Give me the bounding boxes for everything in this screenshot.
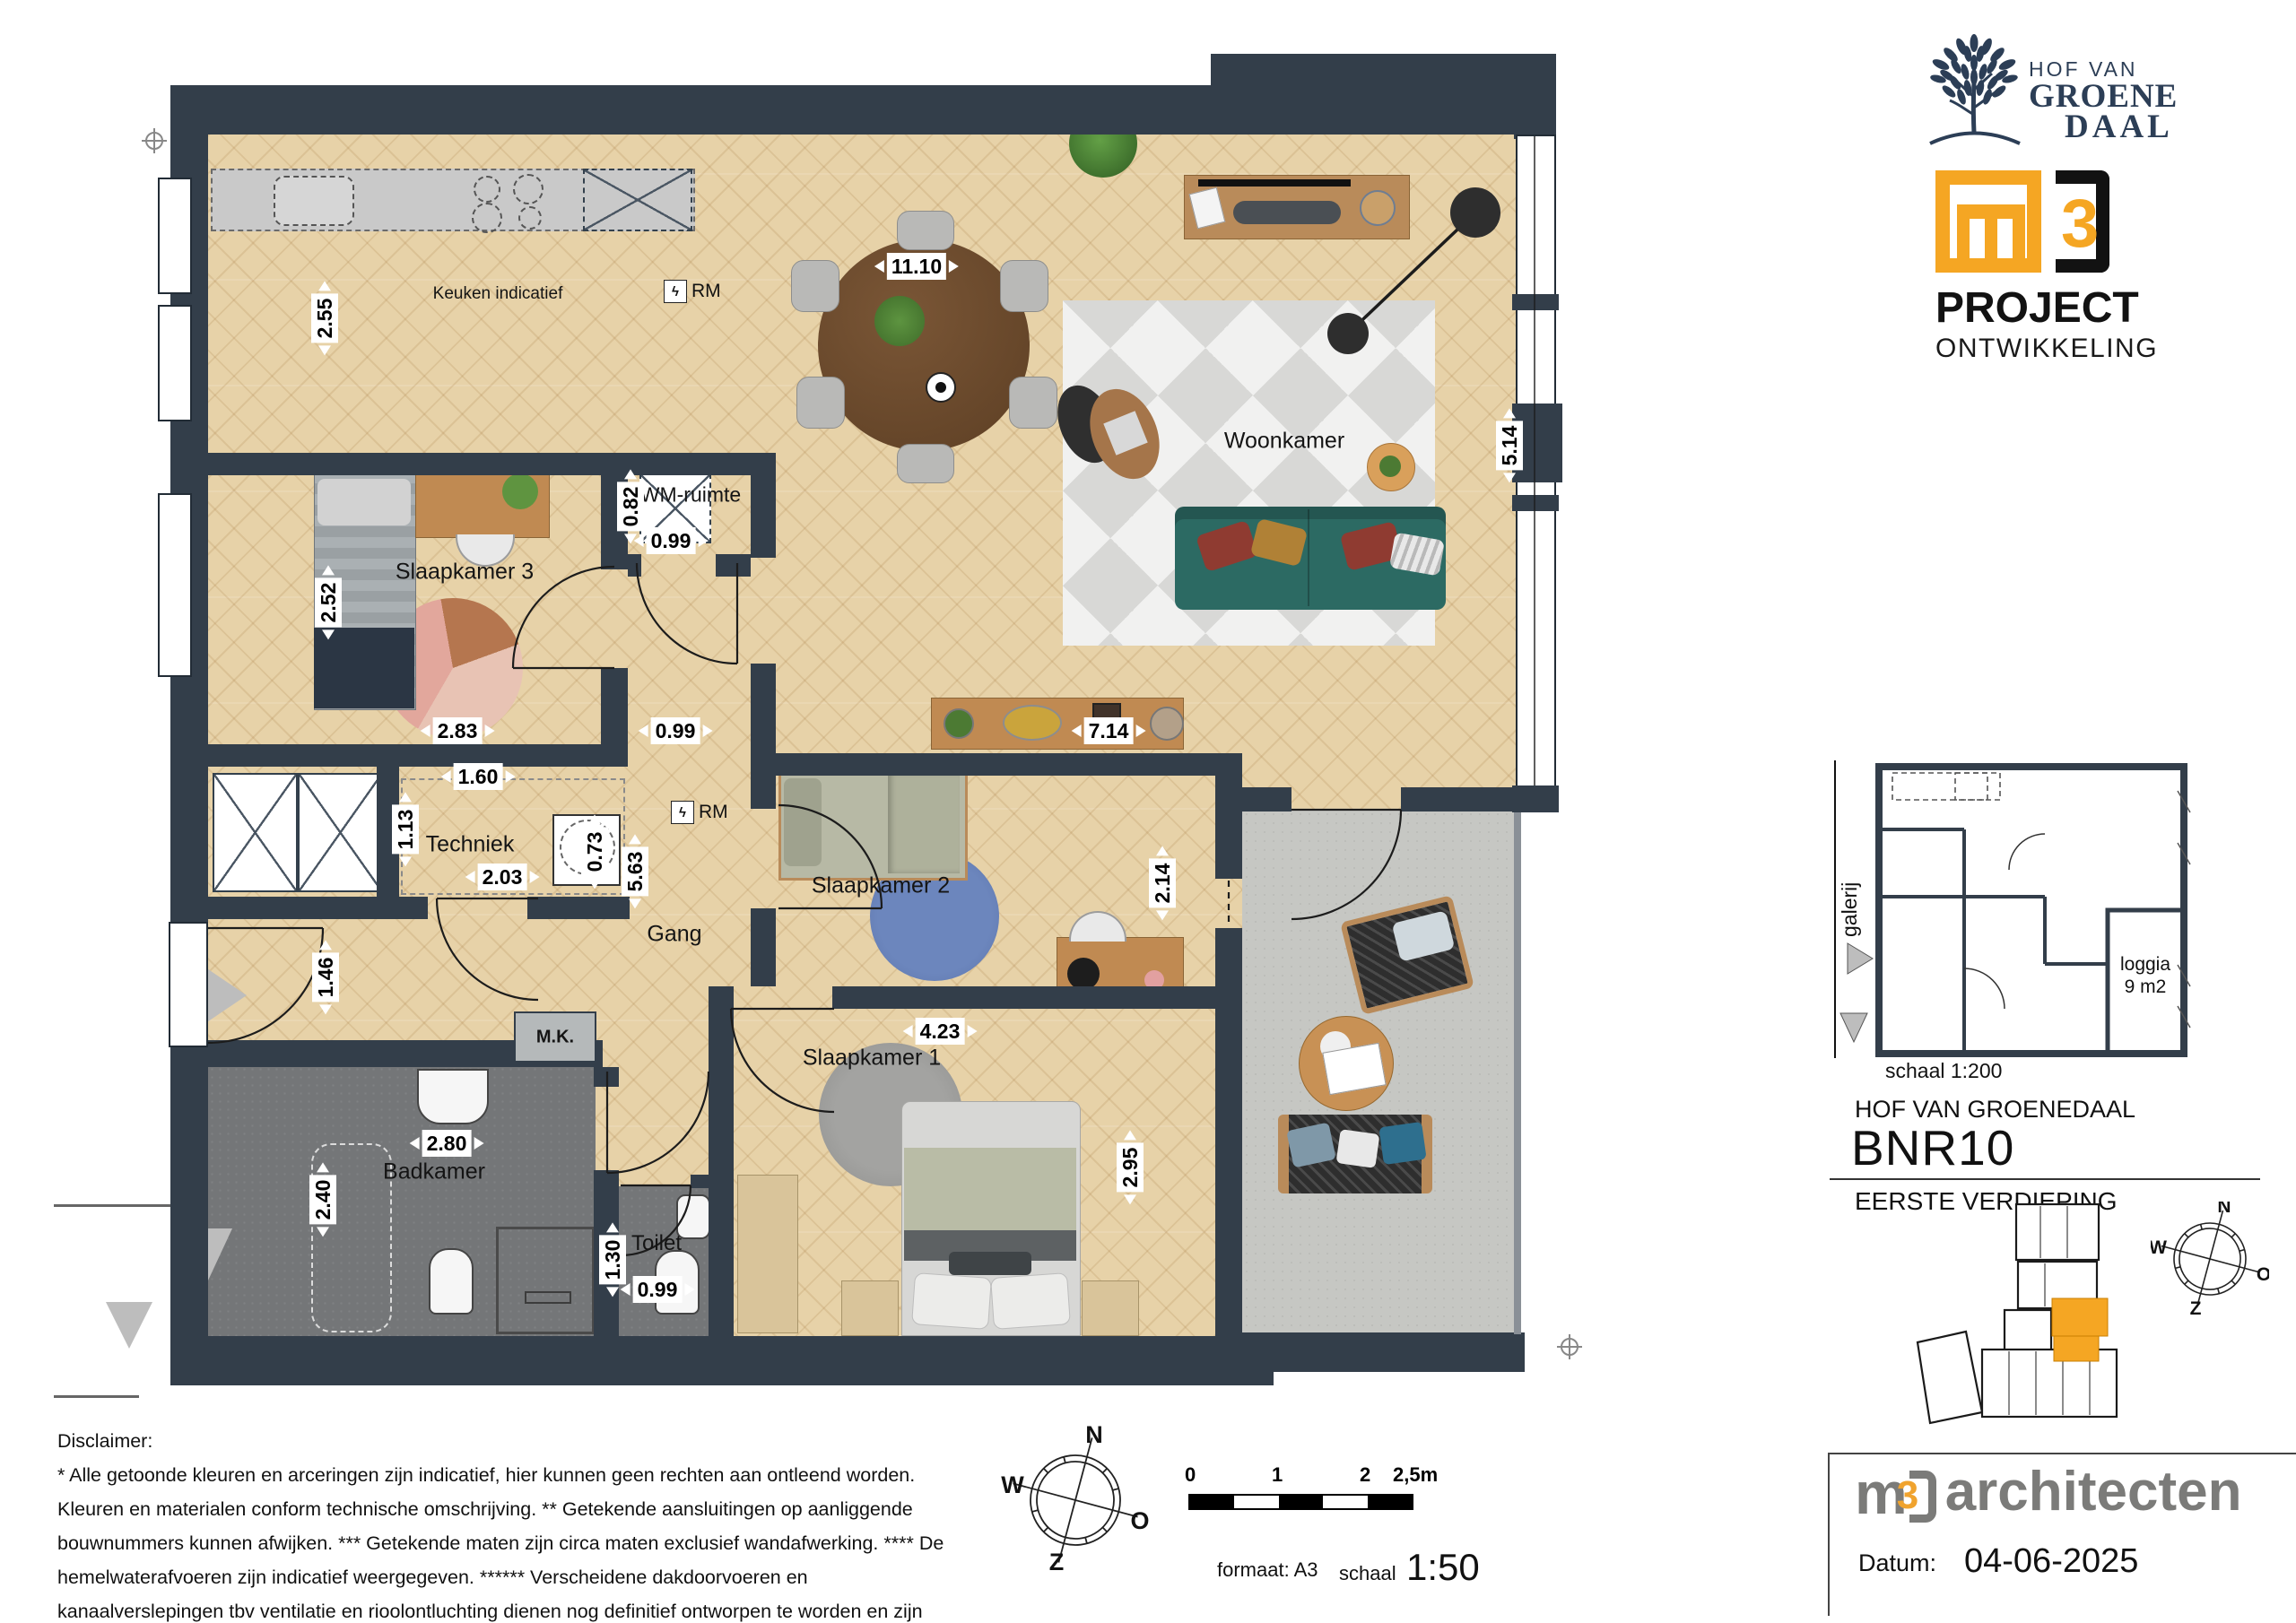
mini-plan-scale-label: schaal 1:200 bbox=[1885, 1059, 2002, 1082]
room-label-wm-ruimte: WM-ruimte bbox=[640, 483, 741, 508]
sideboard-fruitbowl bbox=[1003, 705, 1062, 741]
dim-label: 5.14 bbox=[1496, 403, 1523, 490]
bolt-icon: ϟ bbox=[664, 280, 687, 303]
rm-label: RM bbox=[691, 281, 721, 302]
north-compass-icon: N W O Z bbox=[997, 1424, 1154, 1581]
sofa-seam bbox=[1308, 509, 1309, 606]
bolt-icon: ϟ bbox=[671, 801, 694, 824]
desk-keyboard bbox=[1233, 201, 1341, 224]
desk-monitor-strip bbox=[1198, 179, 1351, 187]
outdoor-sofa-pillow bbox=[1378, 1122, 1426, 1165]
m3-logo-number: 3 bbox=[2061, 185, 2099, 263]
loggia-railing bbox=[1514, 811, 1521, 1334]
room-label-gang: Gang bbox=[647, 922, 701, 948]
gallery-arrow-icon bbox=[1840, 1013, 1867, 1042]
site-compass-icon: N W O Z bbox=[2151, 1202, 2269, 1320]
cooktop-burner bbox=[472, 203, 502, 233]
m3a-number: 3 bbox=[1897, 1473, 1918, 1518]
wardrobe-sk1 bbox=[737, 1175, 798, 1333]
floor-plan: Keuken indicatief Woonkamer Slaapkamer 3… bbox=[0, 0, 1623, 1623]
bathroom-sink bbox=[417, 1069, 489, 1124]
tree-icon bbox=[1925, 30, 2025, 149]
m3-square-icon bbox=[1935, 170, 2041, 273]
date-value: 04-06-2025 bbox=[1964, 1542, 2138, 1581]
m3-project-logo: 3 PROJECT ONTWIKKELING bbox=[1935, 170, 2276, 368]
dining-chair bbox=[897, 444, 954, 483]
room-label-woonkamer: Woonkamer bbox=[1224, 429, 1344, 455]
dim-label: 2.80 bbox=[404, 1130, 491, 1157]
cooktop-burner bbox=[513, 174, 544, 204]
hvg-logo-line3: DAAL bbox=[2029, 112, 2178, 143]
architect-block: m 3 architecten Datum: 04-06-2025 bbox=[1828, 1453, 2296, 1616]
scalebar-tick-1: 1 bbox=[1272, 1463, 1283, 1487]
rm-marker: ϟ RM bbox=[664, 280, 721, 303]
dining-chair bbox=[791, 260, 839, 312]
dim-label: 1.13 bbox=[392, 786, 419, 873]
wall bbox=[691, 1175, 709, 1188]
wall bbox=[527, 897, 630, 919]
bed-sk3-pillow bbox=[317, 479, 411, 525]
desk-sk3-plant bbox=[502, 473, 538, 509]
hof-van-groenedaal-logo: HOF VAN GROENE DAAL bbox=[1925, 30, 2283, 156]
wall bbox=[1514, 85, 1556, 139]
scalebar-tick-2: 2 bbox=[1360, 1463, 1370, 1487]
compass-o: O bbox=[2257, 1264, 2269, 1285]
m3a-text: architecten bbox=[1945, 1467, 2242, 1517]
wall bbox=[776, 753, 1215, 776]
shower-drain bbox=[525, 1291, 571, 1304]
dim-label: 7.14 bbox=[1065, 717, 1152, 744]
bed-sk1-pillow bbox=[990, 1272, 1071, 1330]
window-mullion bbox=[1512, 294, 1559, 310]
wardrobe-cabinet bbox=[298, 773, 383, 892]
dim-label: 2.83 bbox=[414, 717, 501, 744]
cooktop-burner bbox=[474, 176, 500, 203]
window bbox=[158, 305, 192, 421]
gallery-arrow-icon bbox=[1848, 943, 1873, 974]
wall bbox=[1215, 753, 1242, 879]
m3-project-line1: PROJECT bbox=[1935, 283, 2139, 333]
disclaimer-block: Disclaimer: * Alle getoonde kleuren en a… bbox=[57, 1424, 959, 1623]
dim-label: 2.40 bbox=[309, 1157, 336, 1244]
dim-label: 11.10 bbox=[868, 253, 965, 280]
toilet-wc-badkamer bbox=[429, 1248, 474, 1315]
wall bbox=[208, 453, 776, 475]
compass-w: W bbox=[2151, 1237, 2167, 1258]
window-mullion bbox=[1512, 785, 1559, 812]
room-label-toilet: Toilet bbox=[631, 1231, 682, 1256]
table-plant bbox=[874, 296, 925, 346]
bed-sk1-cushion bbox=[949, 1252, 1031, 1275]
site-line bbox=[54, 1204, 170, 1207]
wall bbox=[709, 1009, 734, 1336]
bed-sk2-pillow bbox=[784, 778, 822, 866]
nightstand bbox=[1082, 1280, 1139, 1336]
compass-w: W bbox=[1001, 1471, 1024, 1498]
wall bbox=[751, 453, 776, 558]
window bbox=[158, 178, 192, 294]
room-label-meterkast: M.K. bbox=[536, 1028, 574, 1048]
scale-label: schaal bbox=[1339, 1562, 1396, 1585]
dim-label: 2.03 bbox=[459, 864, 546, 890]
room-label-badkamer: Badkamer bbox=[383, 1159, 485, 1185]
site-line bbox=[54, 1395, 139, 1398]
scalebar-tick-0: 0 bbox=[1185, 1463, 1196, 1487]
date-label: Datum: bbox=[1858, 1549, 1936, 1577]
site-key-plan bbox=[1910, 1197, 2179, 1435]
nightstand bbox=[841, 1280, 899, 1336]
disclaimer-title: Disclaimer: bbox=[57, 1424, 959, 1458]
rm-marker: ϟ RM bbox=[671, 801, 728, 824]
loggia-area-label: 9 m2 bbox=[2125, 976, 2167, 997]
galerij-label: galerij bbox=[1838, 882, 1861, 937]
room-label-slaapkamer2: Slaapkamer 2 bbox=[812, 873, 950, 899]
dining-chair bbox=[1009, 377, 1057, 429]
wall bbox=[709, 986, 734, 1009]
window-mullion bbox=[1512, 495, 1559, 511]
window bbox=[158, 493, 192, 677]
rm-label: RM bbox=[699, 802, 728, 823]
scale-bar: 0 1 2 2,5m bbox=[1188, 1463, 1413, 1517]
outside-strip bbox=[1523, 811, 1559, 1336]
scalebar-tick-25: 2,5m bbox=[1393, 1463, 1438, 1487]
room-label-keuken: Keuken indicatief bbox=[433, 284, 563, 304]
dining-chair bbox=[897, 211, 954, 250]
format-label: formaat: A3 bbox=[1217, 1558, 1318, 1582]
stair-arrow-icon bbox=[106, 1302, 152, 1349]
wall bbox=[751, 908, 776, 986]
hvg-logo-line2: GROENE bbox=[2029, 82, 2178, 112]
sideboard-record bbox=[1150, 707, 1184, 741]
dim-label: 2.52 bbox=[315, 560, 342, 647]
loggia-label: loggia bbox=[2120, 954, 2170, 975]
dim-label: 2.14 bbox=[1149, 840, 1176, 927]
dim-label: 2.55 bbox=[311, 275, 338, 362]
compass-z: Z bbox=[1049, 1549, 1065, 1575]
wall bbox=[170, 85, 1556, 135]
dim-label: 1.46 bbox=[312, 934, 339, 1021]
mini-plan-1-200: galerij loggia 9 m2 schaal 1:200 bbox=[1830, 744, 2296, 1085]
dining-chair bbox=[1000, 260, 1048, 312]
room-label-slaapkamer1: Slaapkamer 1 bbox=[803, 1046, 941, 1072]
wall bbox=[1215, 787, 1291, 811]
bed-sk1-pillow bbox=[911, 1272, 992, 1330]
wall bbox=[751, 664, 776, 809]
sideboard-plant bbox=[944, 708, 974, 739]
wall bbox=[1236, 1332, 1525, 1372]
room-label-slaapkamer3: Slaapkamer 3 bbox=[396, 560, 534, 586]
wall bbox=[1215, 928, 1242, 1336]
cooktop-burner bbox=[518, 206, 542, 230]
dim-label: 1.60 bbox=[435, 763, 522, 790]
m3-architecten-logo: m 3 architecten bbox=[1855, 1467, 2242, 1523]
dining-chair bbox=[796, 377, 845, 429]
wall bbox=[628, 554, 641, 577]
title-divider bbox=[1830, 1178, 2260, 1180]
wall bbox=[601, 668, 628, 744]
dim-label: 4.23 bbox=[897, 1018, 984, 1045]
dim-label: 0.99 bbox=[632, 717, 719, 744]
wall bbox=[832, 986, 1215, 1009]
front-door-opening bbox=[169, 922, 208, 1047]
wall bbox=[208, 897, 428, 919]
title-block: HOF VAN GROENEDAAL BNR10 EERSTE VERDIEPI… bbox=[1830, 1096, 2278, 1203]
kitchen-tall-unit bbox=[583, 169, 692, 231]
dim-label: 5.63 bbox=[622, 829, 648, 916]
room-label-techniek: Techniek bbox=[426, 832, 515, 858]
desk-ring-object bbox=[1360, 190, 1396, 226]
wall bbox=[716, 554, 751, 577]
outdoor-sofa-pillow bbox=[1336, 1129, 1380, 1168]
m3a-bracket-icon: 3 bbox=[1909, 1471, 1936, 1523]
compass-z: Z bbox=[2190, 1298, 2202, 1319]
scalebar-rule bbox=[1188, 1494, 1413, 1510]
dim-label: 2.95 bbox=[1117, 1124, 1144, 1211]
m3-project-line2: ONTWIKKELING bbox=[1935, 334, 2158, 364]
dim-label: 0.99 bbox=[614, 1276, 701, 1303]
wall bbox=[170, 1336, 1274, 1385]
floorplan-sheet: Keuken indicatief Woonkamer Slaapkamer 3… bbox=[0, 0, 2296, 1623]
disclaimer-body: * Alle getoonde kleuren en arceringen zi… bbox=[57, 1458, 959, 1623]
wall bbox=[1211, 54, 1556, 88]
kitchen-sink bbox=[274, 176, 354, 226]
unit-number: BNR10 bbox=[1851, 1119, 2014, 1176]
bed-sk2-fold bbox=[888, 773, 960, 873]
dim-label: 0.73 bbox=[581, 809, 608, 896]
compass-o: O bbox=[1130, 1507, 1149, 1534]
dim-label: 0.99 bbox=[628, 527, 715, 554]
bed-sk1-blanket bbox=[904, 1148, 1076, 1230]
compass-n: N bbox=[2217, 1202, 2231, 1217]
side-table-plant bbox=[1379, 456, 1401, 477]
wall bbox=[594, 1067, 619, 1087]
compass-n: N bbox=[1085, 1424, 1103, 1448]
desk-sk2-record bbox=[1067, 958, 1100, 990]
shower-tray bbox=[496, 1227, 595, 1334]
scale-value: 1:50 bbox=[1406, 1546, 1480, 1589]
wardrobe-cabinet bbox=[213, 773, 298, 892]
table-candle-dot bbox=[935, 382, 946, 393]
wall bbox=[208, 744, 628, 767]
